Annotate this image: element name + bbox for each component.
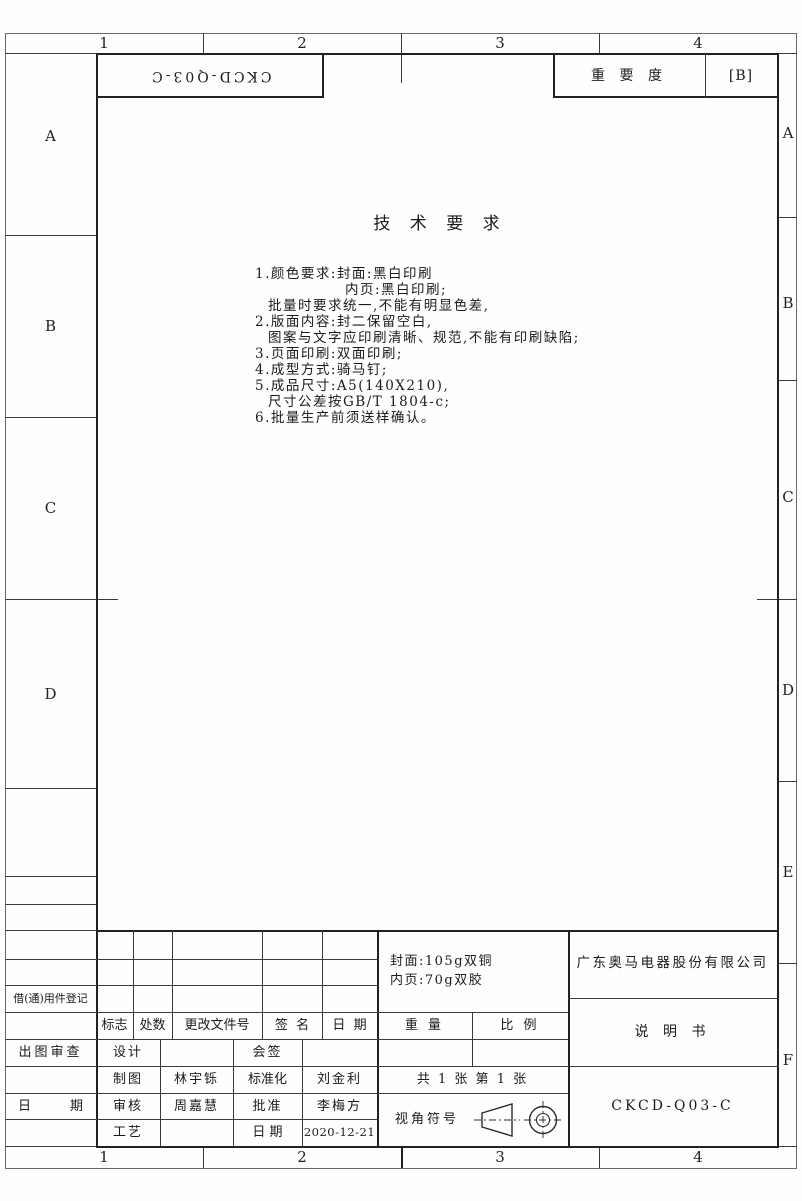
standardize-name: 刘金利 [302, 1066, 377, 1093]
borrowed-parts-label: 借(通)用件登记 [5, 985, 96, 1012]
zone-bottom-2: 2 [290, 1147, 314, 1167]
zone-right-d: D [779, 680, 797, 700]
tech-requirements-title: 技 术 要 求 [340, 212, 540, 236]
document-title: 说 明 书 [568, 998, 777, 1066]
draft-label: 制图 [96, 1066, 160, 1093]
grid-line [203, 33, 204, 53]
revision-date-header: 日 期 [322, 1012, 377, 1039]
zone-right-e: E [779, 862, 797, 882]
zone-left-c: C [5, 498, 96, 518]
margin-date-label: 日 期 [5, 1093, 96, 1119]
zone-right-c: C [779, 487, 797, 507]
zone-top-1: 1 [92, 33, 116, 53]
sheet-count: 共 1 张 第 1 张 [377, 1066, 568, 1093]
centering-mark [96, 599, 118, 600]
grid-line [5, 1119, 96, 1120]
zone-top-4: 4 [686, 33, 710, 53]
company-name: 广东奥马电器股份有限公司 [568, 930, 777, 998]
drawing-review-label: 出图审查 [5, 1039, 96, 1066]
grid-line [599, 1146, 600, 1168]
revision-count-header: 处数 [133, 1012, 172, 1039]
paper-spec: 封面:105g双铜 内页:70g双胶 [390, 930, 568, 1012]
grid-line [779, 599, 797, 600]
importance-value: [B] [705, 53, 777, 98]
document-code: CKCD-Q03-C [568, 1066, 777, 1146]
centering-mark [401, 53, 402, 83]
grid-line [5, 788, 96, 789]
approve-name: 李梅方 [302, 1093, 377, 1119]
revision-mark-header: 标志 [96, 1012, 133, 1039]
zone-left-b: B [5, 316, 96, 336]
zone-bottom-3: 3 [488, 1147, 512, 1167]
design-label: 设计 [96, 1039, 160, 1066]
zone-top-3: 3 [488, 33, 512, 53]
frame-left [96, 53, 98, 1148]
tech-requirements-body: 1.颜色要求:封面:黑白印刷 内页:黑白印刷; 批量时要求统一,不能有明显色差,… [255, 264, 585, 424]
countersign-label: 会签 [233, 1039, 302, 1066]
tech-line: 6.批量生产前须送样确认。 [255, 408, 585, 424]
grid-line [5, 876, 96, 877]
zone-right-b: B [779, 293, 797, 313]
rotated-doc-code: CKCD-Q03-C [96, 53, 324, 98]
grid-line [5, 417, 96, 418]
outer-border-bottom [5, 1168, 797, 1169]
grid-line [96, 985, 377, 986]
grid-line [599, 33, 600, 53]
centering-mark [757, 599, 779, 600]
zone-bottom-1: 1 [92, 1147, 116, 1167]
standardize-label: 标准化 [233, 1066, 302, 1093]
approve-label: 批准 [233, 1093, 302, 1119]
grid-line [779, 380, 797, 381]
grid-line [5, 904, 96, 905]
grid-line [779, 217, 797, 218]
grid-line [5, 599, 96, 600]
weight-header: 重 量 [377, 1012, 472, 1039]
grid-line [779, 781, 797, 782]
process-label: 工艺 [96, 1119, 160, 1146]
zone-left-a: A [5, 126, 96, 146]
date-value: 2020-12-21 [302, 1119, 377, 1146]
draft-name: 林宇铄 [160, 1066, 233, 1093]
date-label: 日 期 [233, 1119, 302, 1146]
grid-line [5, 235, 96, 236]
grid-line [96, 1039, 568, 1040]
grid-line [5, 959, 96, 960]
grid-line [5, 930, 96, 931]
grid-line [779, 963, 797, 964]
check-name: 周嘉慧 [160, 1093, 233, 1119]
revision-signature-header: 签 名 [262, 1012, 322, 1039]
paper-spec-inner: 内页:70g双胶 [390, 971, 483, 990]
zone-right-a: A [779, 123, 797, 143]
zone-bottom-4: 4 [686, 1147, 710, 1167]
frame-bottom [96, 1146, 779, 1148]
grid-line [5, 1012, 96, 1013]
rotated-doc-code-text: CKCD-Q03-C [149, 69, 271, 83]
zone-top-2: 2 [290, 33, 314, 53]
revision-fileno-header: 更改文件号 [172, 1012, 262, 1039]
grid-line [401, 33, 402, 53]
grid-line [96, 959, 377, 960]
zone-right-f: F [779, 1050, 797, 1070]
drawing-sheet: 1 2 3 4 1 2 3 4 A B C D A B C D E F CKCD… [0, 0, 802, 1201]
first-angle-projection-symbol [468, 1098, 563, 1142]
view-symbol-label: 视角符号 [383, 1093, 471, 1146]
scale-header: 比 例 [472, 1012, 568, 1039]
importance-label: 重 要 度 [553, 53, 705, 98]
zone-left-d: D [5, 684, 96, 704]
check-label: 审核 [96, 1093, 160, 1119]
outer-border-right [796, 33, 797, 1169]
grid-line [401, 1146, 403, 1168]
grid-line [203, 1146, 204, 1168]
paper-spec-cover: 封面:105g双铜 [390, 952, 493, 971]
grid-line [5, 1066, 96, 1067]
